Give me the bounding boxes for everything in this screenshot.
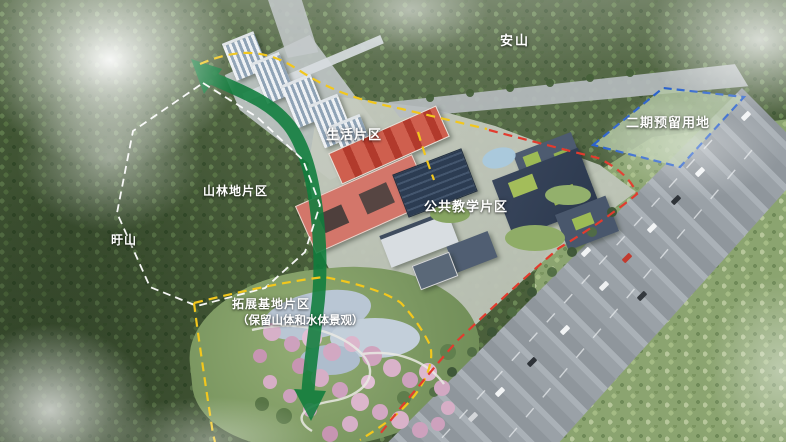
axis-arrowhead-south [294, 389, 326, 421]
masterplan-render: 安山 二期预留用地 生活片区 山林地片区 旴山 公共教学片区 拓展基地片区 （保… [0, 0, 786, 442]
label-phase2: 二期预留用地 [626, 112, 710, 131]
landscape-axis-arrow [191, 59, 326, 421]
lane-markings [440, 140, 752, 442]
label-forest: 山林地片区 [203, 182, 268, 199]
plan-overlay [0, 0, 786, 442]
label-living: 生活片区 [326, 124, 382, 143]
cars [468, 111, 752, 423]
street-trees [426, 69, 634, 397]
label-xushan: 旴山 [111, 231, 137, 248]
label-extension: 拓展基地片区 [232, 295, 310, 312]
campus-boundary-red [380, 130, 637, 434]
blossom-trees [253, 323, 456, 442]
label-anshan: 安山 [500, 30, 530, 49]
label-teaching: 公共教学片区 [424, 196, 508, 215]
label-extension-note: （保留山体和水体景观） [237, 312, 364, 328]
